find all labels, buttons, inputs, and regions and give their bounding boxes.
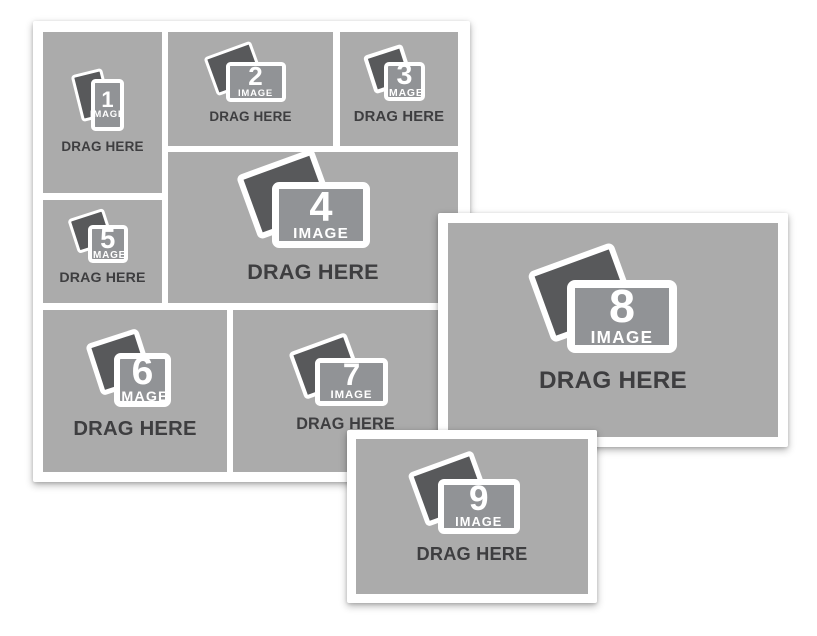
image-number: 6 bbox=[132, 355, 154, 388]
drag-here-label: DRAG HERE bbox=[539, 367, 687, 395]
image-label: IMAGE bbox=[238, 89, 273, 99]
image-dropzone-5[interactable]: 5 IMAGE DRAG HERE bbox=[43, 200, 162, 303]
photo-front-icon: 8 IMAGE bbox=[567, 280, 677, 354]
image-label: IMAGE bbox=[591, 329, 654, 346]
image-label: IMAGE bbox=[89, 251, 126, 261]
drag-here-label: DRAG HERE bbox=[417, 544, 528, 565]
collage-template-panel: 1 IMAGE DRAG HERE 2 IMAGE DRAG HERE 3 IM… bbox=[33, 21, 470, 482]
photo-front-icon: 7 IMAGE bbox=[315, 358, 387, 406]
image-number: 9 bbox=[469, 484, 489, 514]
photo-front-icon: 6 IMAGE bbox=[114, 353, 171, 407]
dropzone-card-8: 8 IMAGE DRAG HERE bbox=[438, 213, 788, 447]
image-dropzone-9[interactable]: 9 IMAGE DRAG HERE bbox=[356, 439, 588, 594]
image-label: IMAGE bbox=[293, 226, 349, 241]
image-dropzone-3[interactable]: 3 IMAGE DRAG HERE bbox=[340, 32, 458, 146]
photo-stack-icon: 6 IMAGE bbox=[114, 353, 171, 407]
image-number: 7 bbox=[343, 362, 360, 389]
drag-here-label: DRAG HERE bbox=[247, 259, 379, 285]
photo-stack-icon: 1 IMAGE bbox=[91, 79, 124, 131]
image-dropzone-8[interactable]: 8 IMAGE DRAG HERE bbox=[448, 223, 778, 437]
image-label: IMAGE bbox=[90, 110, 125, 120]
photo-stack-icon: 7 IMAGE bbox=[315, 358, 387, 406]
dropzone-card-9: 9 IMAGE DRAG HERE bbox=[347, 430, 597, 603]
image-label: IMAGE bbox=[455, 516, 502, 529]
drag-here-label: DRAG HERE bbox=[59, 270, 145, 286]
photo-stack-icon: 5 IMAGE bbox=[88, 225, 128, 262]
photo-front-icon: 9 IMAGE bbox=[438, 479, 520, 534]
image-number: 4 bbox=[309, 189, 332, 224]
image-label: IMAGE bbox=[116, 390, 168, 404]
image-number: 5 bbox=[100, 227, 115, 250]
image-label: IMAGE bbox=[331, 390, 373, 401]
drag-here-label: DRAG HERE bbox=[73, 418, 196, 441]
photo-front-icon: 3 IMAGE bbox=[384, 62, 425, 101]
photo-stack-icon: 2 IMAGE bbox=[226, 62, 286, 102]
photo-stack-icon: 3 IMAGE bbox=[384, 62, 425, 101]
image-dropzone-4[interactable]: 4 IMAGE DRAG HERE bbox=[168, 152, 458, 303]
image-dropzone-2[interactable]: 2 IMAGE DRAG HERE bbox=[168, 32, 333, 146]
image-number: 1 bbox=[101, 91, 113, 110]
photo-stack-icon: 9 IMAGE bbox=[438, 479, 520, 534]
photo-front-icon: 2 IMAGE bbox=[226, 62, 286, 102]
photo-stack-icon: 8 IMAGE bbox=[567, 280, 677, 354]
photo-front-icon: 4 IMAGE bbox=[272, 182, 369, 247]
drag-here-label: DRAG HERE bbox=[61, 139, 143, 154]
drag-here-label: DRAG HERE bbox=[354, 109, 444, 125]
photo-stack-icon: 4 IMAGE bbox=[272, 182, 369, 247]
image-label: IMAGE bbox=[385, 89, 423, 99]
image-number: 8 bbox=[609, 287, 635, 327]
image-number: 3 bbox=[397, 63, 413, 87]
photo-front-icon: 5 IMAGE bbox=[88, 225, 128, 262]
image-dropzone-6[interactable]: 6 IMAGE DRAG HERE bbox=[43, 310, 227, 472]
drag-here-label: DRAG HERE bbox=[209, 109, 291, 124]
image-dropzone-1[interactable]: 1 IMAGE DRAG HERE bbox=[43, 32, 162, 193]
image-number: 2 bbox=[248, 65, 262, 87]
photo-front-icon: 1 IMAGE bbox=[91, 79, 124, 131]
